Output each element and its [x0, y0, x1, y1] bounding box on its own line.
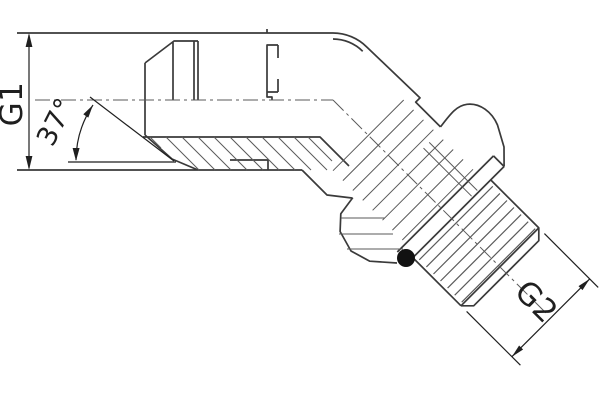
- angle-arrow-bottom: [73, 148, 80, 161]
- detail-lines: [150, 100, 477, 249]
- g1-arrow-up: [26, 33, 33, 47]
- dimension-lines: [29, 35, 598, 365]
- g2-label: G2: [507, 273, 564, 330]
- elbow-bend-outline: [302, 33, 441, 198]
- facet-lines: [339, 142, 477, 249]
- g1-label: G1: [0, 82, 30, 127]
- g1-arrow-down: [26, 156, 33, 170]
- technical-drawing-canvas: G1 37° G2: [0, 0, 600, 400]
- elbow-fitting-drawing: G1 37° G2: [0, 0, 600, 400]
- section-hatch: [150, 137, 332, 170]
- angle-arrow-top: [83, 105, 93, 118]
- locknut-outline: [340, 198, 397, 263]
- o-ring-dot: [397, 249, 415, 267]
- angle-flare-line: [90, 97, 174, 161]
- fitting-outlines: [17, 29, 539, 306]
- angle-label: 37°: [31, 93, 81, 151]
- centerline-branch: [333, 100, 548, 315]
